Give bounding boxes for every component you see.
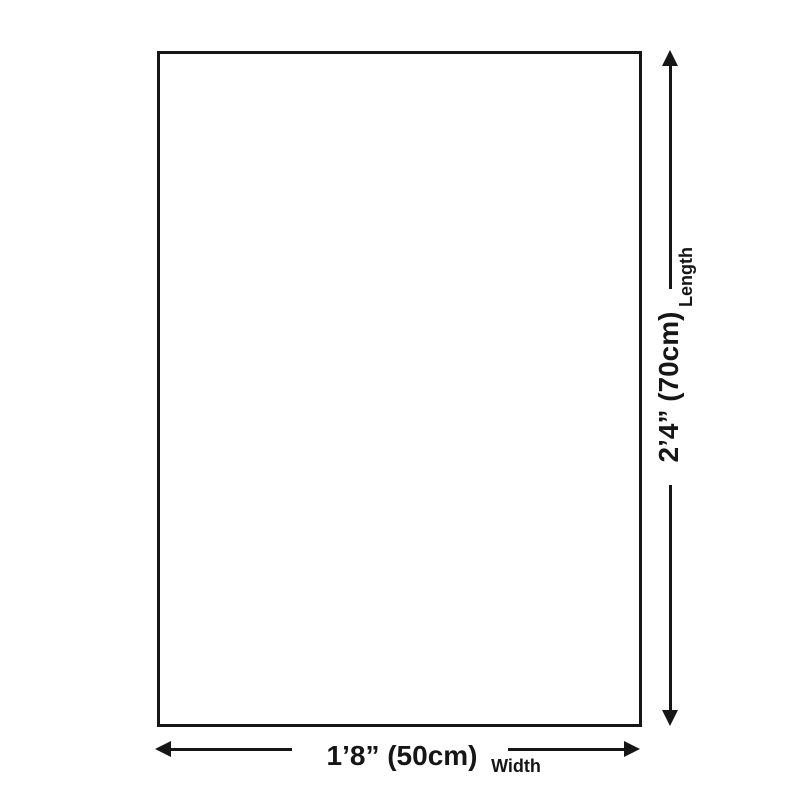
product-outline-rectangle bbox=[157, 51, 642, 727]
length-arrow-line-bottom bbox=[669, 485, 672, 712]
arrow-down-icon bbox=[662, 710, 678, 726]
length-dimension-label: Length bbox=[674, 237, 698, 317]
arrow-left-icon bbox=[155, 741, 171, 757]
length-dimension-value: 2’4” (70cm) bbox=[653, 302, 685, 472]
width-dimension-label: Width bbox=[486, 754, 546, 778]
width-dimension-value: 1’8” (50cm) bbox=[302, 740, 502, 772]
width-arrow-line-left bbox=[170, 748, 292, 751]
arrow-right-icon bbox=[624, 741, 640, 757]
length-arrow-line-top bbox=[669, 62, 672, 289]
width-arrow-line-right bbox=[508, 748, 626, 751]
size-diagram: 2’4” (70cm) Length 1’8” (50cm) Width bbox=[0, 0, 800, 800]
